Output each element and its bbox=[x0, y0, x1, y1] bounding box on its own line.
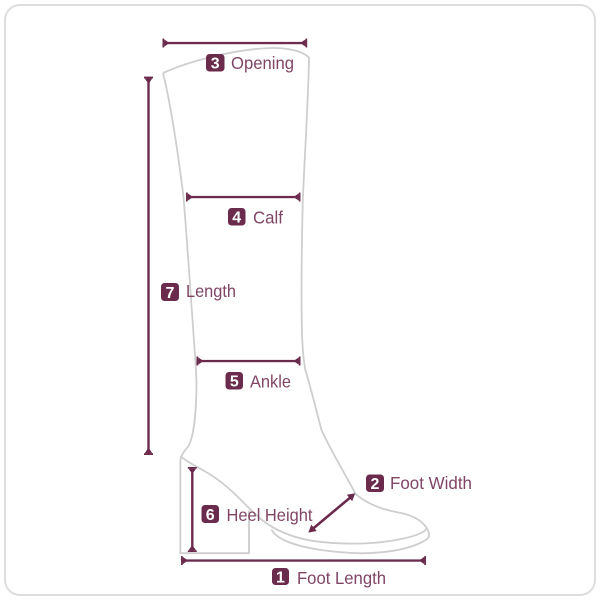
svg-text:Heel Height: Heel Height bbox=[227, 505, 313, 525]
svg-text:Length: Length bbox=[186, 281, 236, 301]
svg-text:Ankle: Ankle bbox=[250, 372, 291, 392]
svg-text:4: 4 bbox=[232, 210, 241, 227]
svg-text:Calf: Calf bbox=[253, 208, 283, 228]
svg-text:1: 1 bbox=[276, 569, 285, 586]
svg-text:Opening: Opening bbox=[231, 53, 294, 73]
svg-text:3: 3 bbox=[211, 56, 220, 73]
svg-text:Foot Length: Foot Length bbox=[297, 568, 386, 588]
svg-text:6: 6 bbox=[206, 507, 215, 524]
svg-text:7: 7 bbox=[166, 285, 175, 302]
svg-text:5: 5 bbox=[230, 374, 239, 391]
svg-text:Foot Width: Foot Width bbox=[390, 473, 472, 493]
svg-text:2: 2 bbox=[371, 476, 380, 493]
